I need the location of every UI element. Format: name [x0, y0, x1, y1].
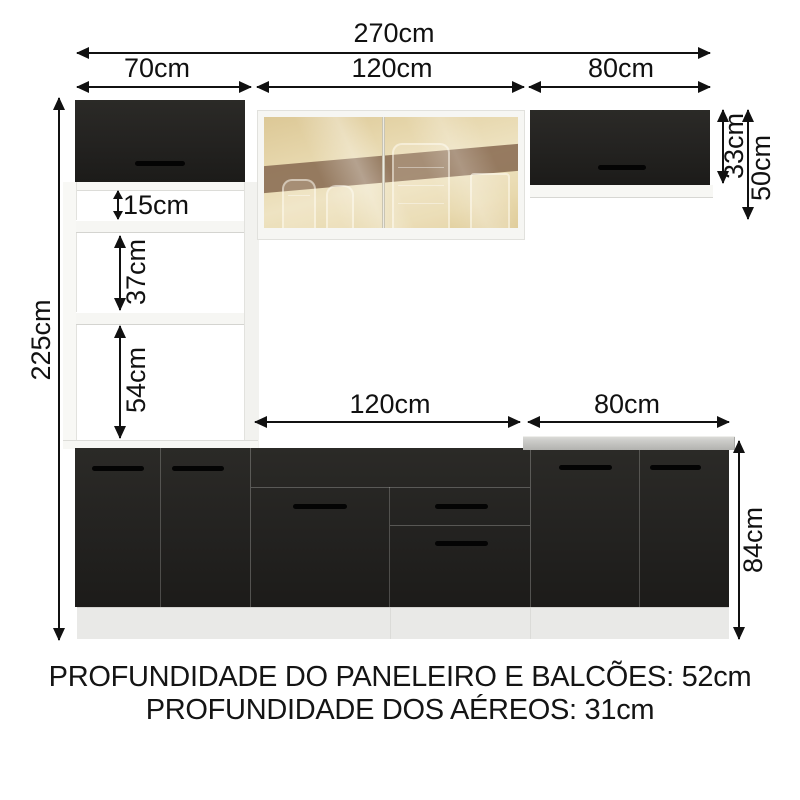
upper-left-cabinet-handle-icon: [135, 161, 185, 166]
dim-total-height-arrow: [58, 98, 60, 640]
base-left-cabinet: [75, 448, 250, 607]
depth-note-line2: PROFUNDIDADE DOS AÉREOS: 31cm: [0, 694, 800, 726]
base-middle-drawer1-handle-icon: [435, 504, 488, 509]
dim-base-right-width-label: 80cm: [594, 389, 660, 419]
dim-niche-top-label: 15cm: [123, 190, 189, 220]
base-right-cabinet: [530, 450, 729, 607]
dim-upper-right-total-height-label: 50cm: [746, 118, 778, 218]
dim-upper-middle-width-arrow: [257, 86, 524, 88]
dim-total-width-label: 270cm: [353, 18, 434, 48]
base-middle-door-handle-icon: [293, 504, 347, 509]
plinth: [77, 607, 729, 639]
dim-niche-bottom-label: 54cm: [121, 330, 153, 430]
base-right-door2-handle-icon: [650, 465, 701, 470]
dim-base-middle-width-arrow: [255, 421, 520, 423]
glass-cabinet-interior: [264, 117, 518, 228]
base-right-door1-handle-icon: [559, 465, 612, 470]
upper-right-cabinet: [530, 110, 710, 185]
column-shelf-2: [76, 312, 244, 325]
dim-upper-right-width-arrow: [529, 86, 710, 88]
glass-door-divider: [382, 117, 385, 228]
depth-note-line1: PROFUNDIDADE DO PANELEIRO E BALCÕES: 52c…: [0, 661, 800, 693]
column-left-wall: [63, 182, 77, 448]
dim-niche-middle-label: 37cm: [121, 222, 153, 322]
dim-base-middle-width-label: 120cm: [349, 389, 430, 419]
column-shelf-1: [76, 220, 244, 233]
dim-upper-left-width-label: 70cm: [124, 53, 190, 83]
dim-upper-right-width-label: 80cm: [588, 53, 654, 83]
dim-upper-left-width-arrow: [77, 86, 251, 88]
upper-right-shelf: [530, 185, 713, 198]
dim-niche-top-arrow: [117, 191, 119, 219]
glass-reflection: [264, 117, 518, 228]
dim-upper-middle-width-label: 120cm: [351, 53, 432, 83]
dim-base-height-label: 84cm: [738, 490, 770, 590]
upper-left-cabinet: [75, 100, 245, 182]
countertop: [523, 436, 735, 450]
base-middle-drawer2-handle-icon: [435, 541, 488, 546]
base-middle-cabinet: [250, 448, 530, 607]
dim-total-height-label: 225cm: [26, 290, 58, 390]
dim-base-right-width-arrow: [528, 421, 729, 423]
upper-right-cabinet-handle-icon: [598, 165, 646, 170]
kitchen-dimensions-diagram: 270cm 70cm 120cm 80cm 225cm 15cm 37cm 54…: [0, 0, 800, 800]
